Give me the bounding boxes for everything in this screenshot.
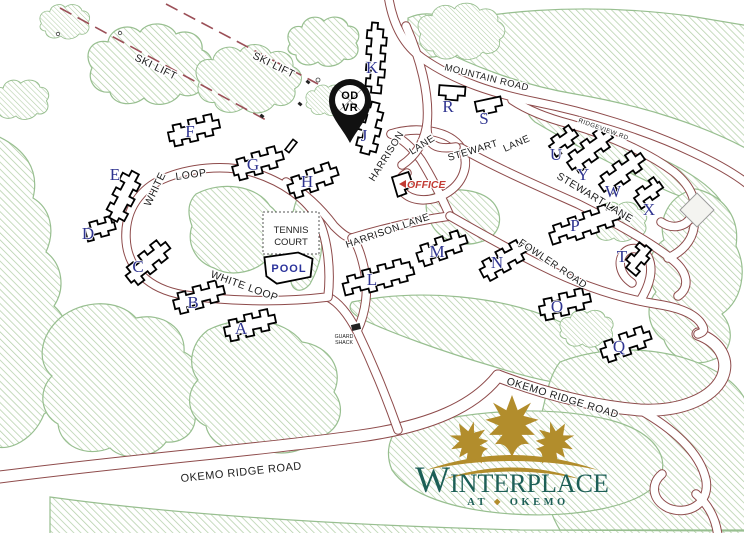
building-u-label: U [550, 145, 562, 164]
building-m-label: M [429, 242, 444, 261]
pin-text: OD [341, 90, 359, 102]
tree-area [0, 80, 49, 119]
building-s: S [475, 96, 503, 128]
lift-marker-icon [316, 78, 320, 82]
tree-area [190, 320, 341, 453]
building-l-footprint [340, 257, 416, 299]
building-r-label: R [442, 97, 454, 116]
building-e-label: E [110, 165, 120, 184]
tree-area [418, 3, 505, 59]
building-s-label: S [479, 109, 488, 128]
building-k-label: K [366, 58, 379, 77]
tennis-court-label: COURT [274, 237, 308, 248]
okemo-ridge-road-label: OKEMO RIDGE ROAD [180, 460, 302, 485]
building-l-label: L [367, 270, 377, 289]
pin-text: VR [342, 102, 358, 114]
building-b-label: B [187, 293, 198, 312]
building-f-label: F [185, 122, 194, 141]
resort-site-map: TENNIS COURT POOL OFFICE GUARD SHACK A B… [0, 0, 744, 533]
office-label: OFFICE [407, 179, 446, 191]
building-a-label: A [235, 319, 248, 338]
harrison-lane-label: HARRISON LANE [344, 212, 431, 251]
building-g-label: G [247, 155, 259, 174]
lift-marker-icon [56, 32, 59, 35]
building-k: K [362, 22, 389, 94]
tree-area [42, 304, 202, 457]
tree-area [196, 45, 301, 113]
building-f: F [166, 113, 222, 147]
building-j-label: J [361, 126, 368, 145]
small-structure [285, 139, 297, 152]
building-c-label: C [132, 257, 143, 276]
building-r: R [439, 85, 466, 116]
building-n-label: N [491, 253, 503, 272]
tennis-court-label: TENNIS [274, 225, 309, 236]
building-l: L [340, 257, 416, 299]
pool-label: POOL [271, 263, 306, 275]
building-h: H [285, 161, 342, 200]
building-x-label: X [643, 200, 655, 219]
guard-shack-label: SHACK [335, 340, 353, 346]
logo-subtitle: AT◆OKEMO [467, 497, 568, 508]
building-p-label: P [570, 216, 579, 235]
lift-tower-icon [298, 102, 303, 107]
building-d-label: D [82, 224, 94, 243]
lift-marker-icon [118, 31, 121, 34]
building-o-label: O [551, 297, 563, 316]
building-q-label: Q [613, 337, 625, 356]
building-t-label: T [617, 247, 628, 266]
building-h-label: H [301, 172, 313, 191]
stewart-lane-label: LANE [502, 133, 532, 154]
tree-area [288, 17, 359, 66]
